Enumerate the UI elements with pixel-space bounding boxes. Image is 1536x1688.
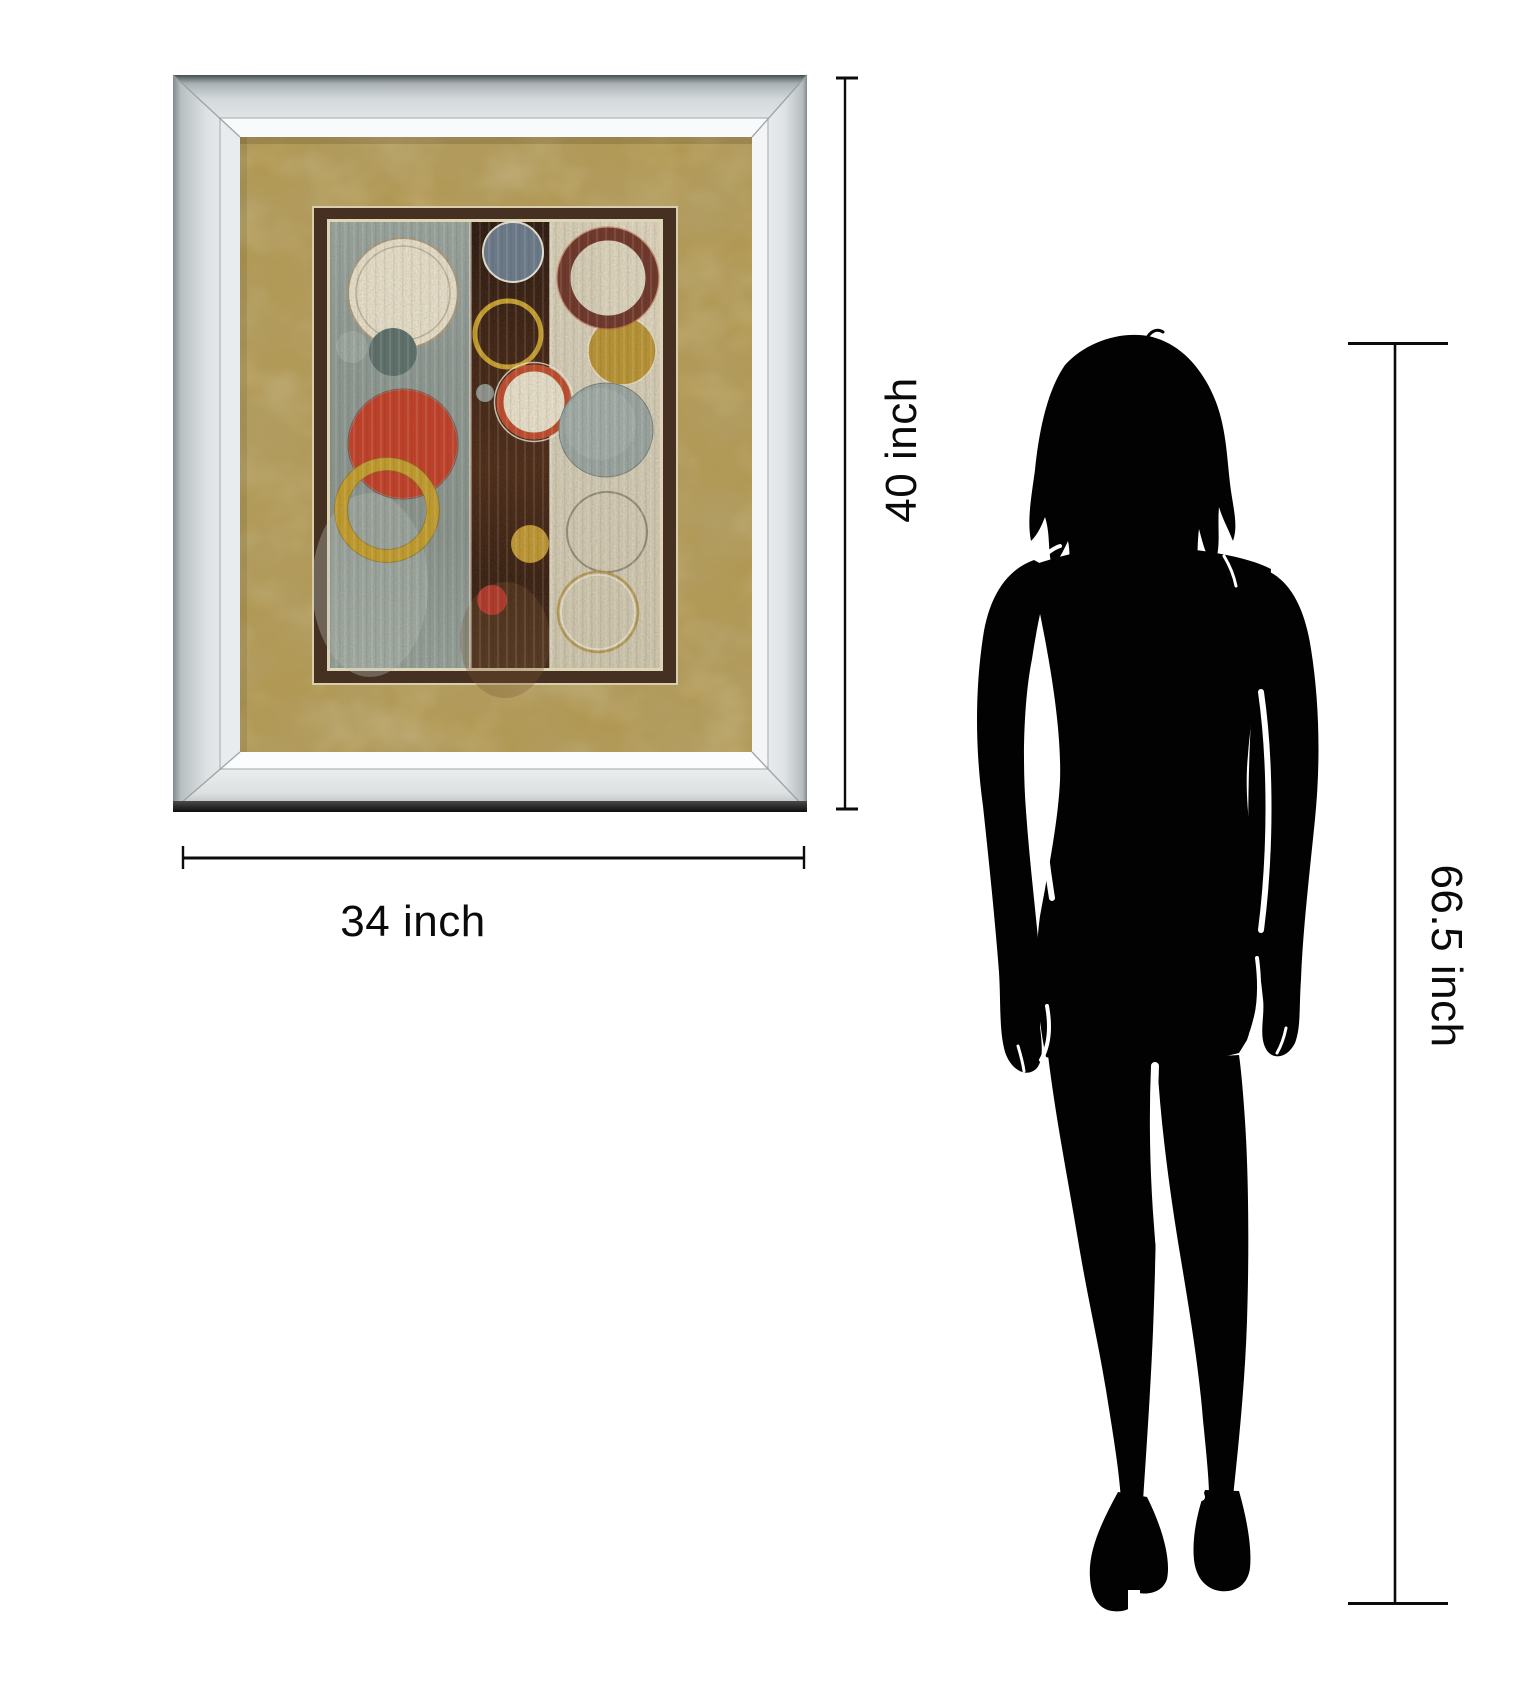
frame-bevel-bottom: [220, 752, 768, 769]
scene-graphics: [0, 0, 1536, 1688]
artwork-height-label: 40 inch: [877, 377, 927, 522]
painting-assembly: [312, 207, 677, 698]
frame-face-right: [768, 75, 807, 810]
silhouette-right-leg: [1157, 1055, 1248, 1497]
frame-bevel-right: [752, 118, 768, 769]
mat-inner-shadow-left: [240, 137, 247, 752]
frame-face-top: [173, 75, 807, 118]
artwork-width-line: [182, 846, 805, 869]
silhouette-torso: [1030, 546, 1271, 1067]
left-shoe-heel-notch: [1128, 1590, 1140, 1613]
frame-bevel-top: [220, 118, 768, 137]
painting-grain: [330, 222, 660, 668]
silhouette-left-leg: [1048, 1055, 1157, 1501]
frame-face-left: [173, 75, 220, 810]
frame-bottom-shadow: [173, 801, 807, 812]
figure-height-label: 66.5 inch: [1421, 864, 1471, 1047]
mat-inner-shadow-top: [240, 137, 752, 144]
product-dimension-diagram: 40 inch 34 inch 66.5 inch: [0, 0, 1536, 1688]
woman-silhouette: [977, 330, 1318, 1613]
silhouette-right-shoe: [1193, 1490, 1250, 1591]
artwork-width-label: 34 inch: [340, 897, 485, 947]
artwork-height-line: [836, 78, 858, 810]
frame-bevel-left: [220, 118, 240, 769]
abstract-painting: [312, 222, 660, 698]
